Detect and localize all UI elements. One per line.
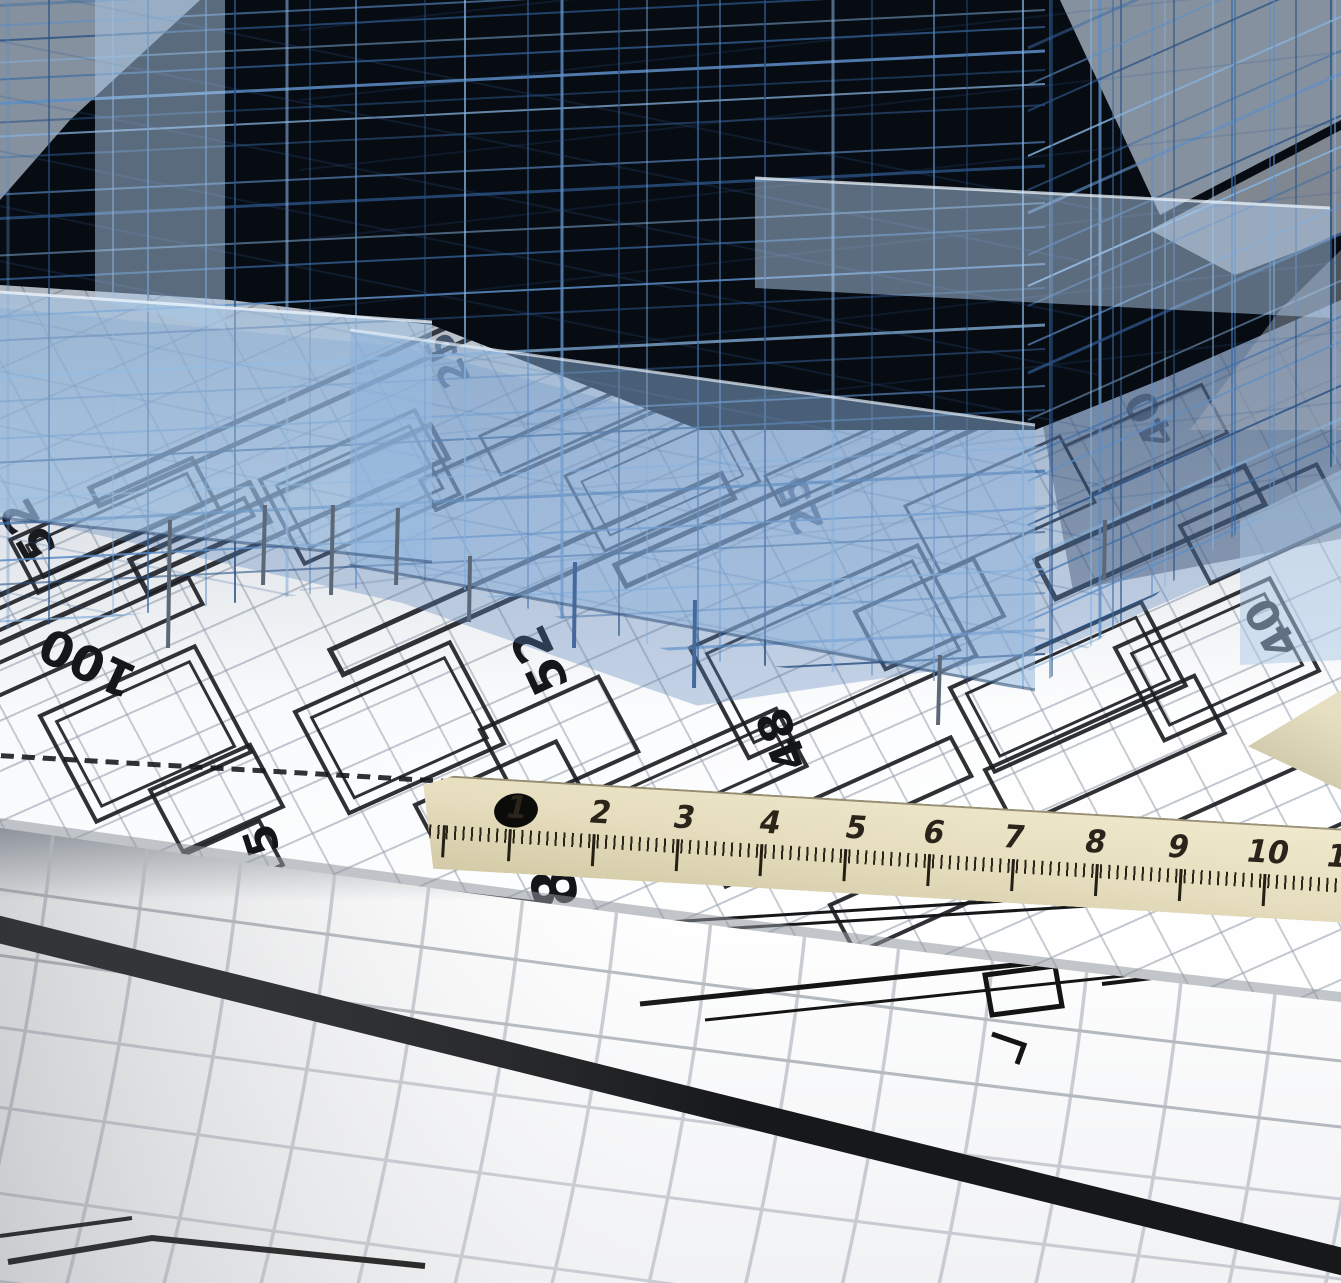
roll-left-shading bbox=[0, 820, 1341, 1283]
rolled-blueprint-sheet bbox=[0, 0, 1341, 1283]
architectural-render-scene: 52 100 52 48 40 5 48 40 25 25 bbox=[0, 0, 1341, 1283]
